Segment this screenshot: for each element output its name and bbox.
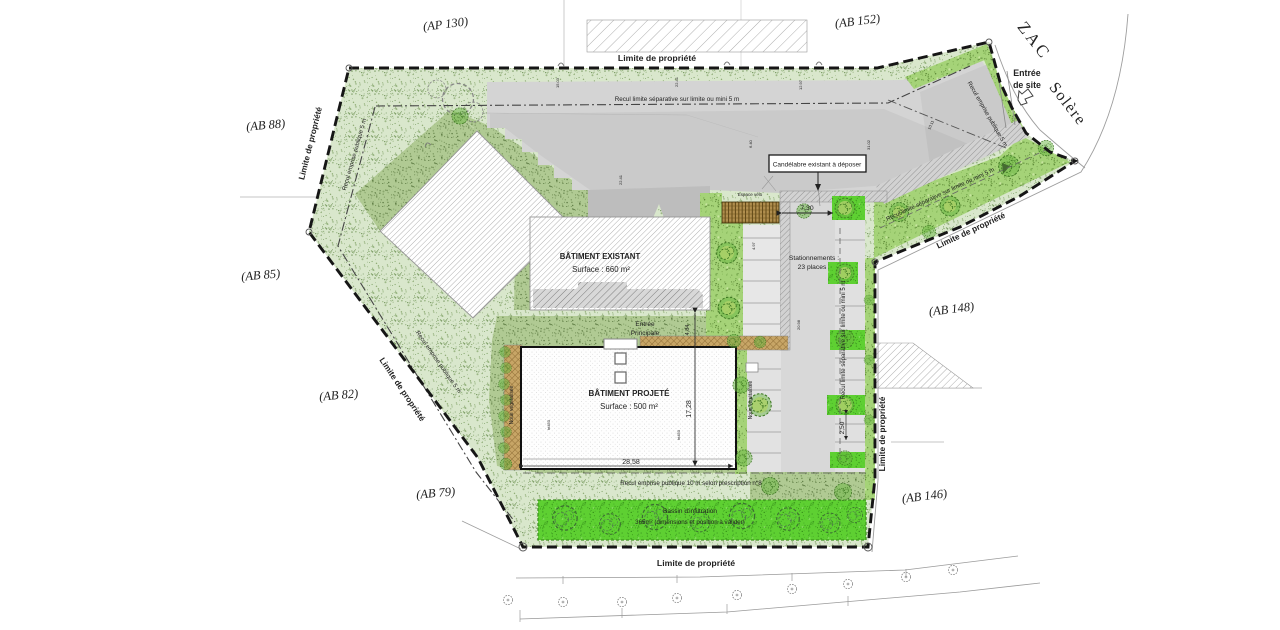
svg-text:Recul limite séparative sur li: Recul limite séparative sur limite ou mi… [841, 281, 847, 400]
svg-text:17,28: 17,28 [686, 400, 693, 418]
svg-text:6.40: 6.40 [748, 139, 753, 148]
svg-text:ht450: ht450 [546, 419, 551, 430]
svg-text:Entrée: Entrée [635, 321, 655, 328]
svg-text:4.97: 4.97 [751, 241, 756, 250]
svg-text:Entrée: Entrée [1013, 68, 1040, 78]
svg-text:Surface : 660 m²: Surface : 660 m² [572, 265, 630, 274]
svg-text:Limite de propriété: Limite de propriété [657, 558, 735, 568]
svg-text:BÂTIMENT EXISTANT: BÂTIMENT EXISTANT [560, 252, 641, 261]
svg-text:23 places: 23 places [798, 264, 827, 271]
svg-text:Principale: Principale [631, 330, 660, 337]
svg-text:15.03: 15.03 [555, 77, 560, 88]
svg-text:7,30: 7,30 [800, 205, 813, 212]
svg-text:Surface : 500 m²: Surface : 500 m² [600, 402, 658, 411]
svg-text:Limite de propriété: Limite de propriété [618, 53, 696, 63]
svg-text:de site: de site [1013, 80, 1041, 90]
svg-text:22.41: 22.41 [674, 76, 679, 87]
svg-text:Bassin d'infiltration: Bassin d'infiltration [663, 508, 717, 515]
svg-text:22.41: 22.41 [618, 174, 623, 185]
svg-text:Recul limite séparative sur li: Recul limite séparative sur limite ou mi… [615, 96, 740, 103]
svg-text:28,58: 28,58 [622, 459, 640, 466]
svg-text:Candélabre existant à déposer: Candélabre existant à déposer [773, 162, 862, 169]
svg-text:365m² (dimensions et position: 365m² (dimensions et position à valider) [635, 519, 745, 526]
svg-text:Espace vélo: Espace vélo [738, 192, 763, 197]
svg-text:Stationnements :: Stationnements : [789, 255, 839, 262]
svg-text:31.02: 31.02 [866, 139, 871, 150]
svg-text:Limite de propriété: Limite de propriété [877, 396, 887, 471]
svg-text:Recul emprise publique 10 m se: Recul emprise publique 10 m selon prescr… [620, 480, 762, 487]
svg-text:BÂTIMENT PROJETÉ: BÂTIMENT PROJETÉ [589, 389, 671, 398]
svg-text:Noue végétalisée: Noue végétalisée [509, 385, 515, 424]
svg-text:ht450: ht450 [676, 429, 681, 440]
svg-text:2,50: 2,50 [839, 421, 846, 434]
svg-text:20.98: 20.98 [796, 319, 801, 330]
svg-text:4,84: 4,84 [685, 325, 691, 336]
svg-text:12.97: 12.97 [798, 79, 803, 90]
svg-text:Noue végétalisée: Noue végétalisée [748, 380, 754, 419]
